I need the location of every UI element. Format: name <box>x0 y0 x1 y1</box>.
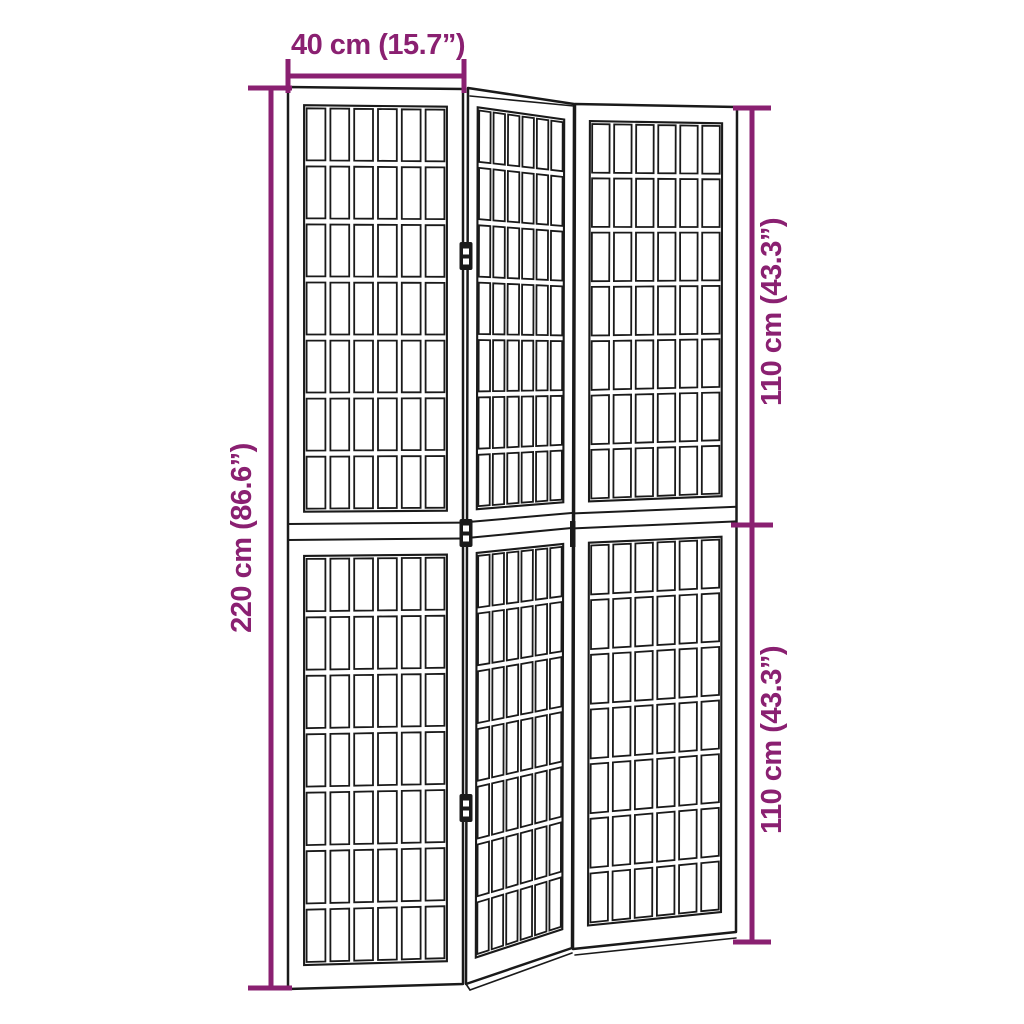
lattice-cell <box>426 558 445 610</box>
lattice-cell <box>550 767 562 819</box>
lattice-cell <box>635 868 653 918</box>
lattice-cell <box>591 817 609 867</box>
lattice-cell <box>479 225 491 277</box>
hinge <box>460 242 473 270</box>
lattice-cell <box>478 842 490 897</box>
lattice-cell <box>378 733 397 786</box>
room-divider-dimension-diagram: 40 cm (15.7”) 220 cm (86.6”) 110 cm (43.… <box>0 0 1024 1024</box>
lattice-cell <box>426 732 445 784</box>
lattice-cell <box>521 774 533 827</box>
lattice-cell <box>508 115 520 167</box>
lattice-cell <box>658 340 676 388</box>
lattice-cell <box>426 674 445 726</box>
lattice-cell <box>521 662 533 714</box>
lattice-cell <box>402 616 421 668</box>
lattice-cell <box>354 283 373 335</box>
lattice-cell <box>636 233 654 281</box>
lattice-cell <box>330 399 349 451</box>
lattice-cell <box>536 285 548 335</box>
lattice-cell <box>702 179 720 227</box>
lattice-cell <box>680 179 698 227</box>
lattice-cell <box>521 830 533 883</box>
lattice-cell <box>680 286 698 334</box>
hinge-screw <box>463 811 469 817</box>
lattice-cell <box>493 454 505 506</box>
lattice-cell <box>307 166 326 218</box>
lattice-cell <box>402 456 421 508</box>
lattice-cell <box>307 617 326 670</box>
lattice-cell <box>479 168 491 220</box>
lattice-cell <box>506 890 518 944</box>
lattice-cell <box>679 702 697 752</box>
lattice-cell <box>426 398 445 450</box>
lattice-cell <box>551 121 563 172</box>
dimension-label-lower-height: 110 cm (43.3”) <box>756 646 788 834</box>
lattice-cell <box>613 449 631 498</box>
lattice-cell <box>613 870 631 920</box>
lattice-cell <box>426 790 445 842</box>
lattice-cell <box>402 849 421 902</box>
lattice-cell <box>613 652 631 702</box>
lattice-cell <box>536 604 548 656</box>
lattice-cell <box>307 224 326 276</box>
lattice-cell <box>479 283 491 335</box>
lattice-cell <box>378 791 397 844</box>
lattice-cell <box>507 453 519 504</box>
lattice-cell <box>354 617 373 669</box>
lattice-cell <box>402 167 421 219</box>
hinge-screw <box>463 801 469 807</box>
lattice-cell <box>330 559 349 612</box>
lattice-cell <box>537 174 549 225</box>
lattice-cell <box>636 286 654 335</box>
lattice-cell <box>307 851 326 904</box>
lattice-cell <box>591 599 609 649</box>
lattice-cell <box>701 808 719 858</box>
lattice-cell <box>507 721 519 774</box>
lattice-cell <box>426 616 445 668</box>
lattice-cell <box>657 812 675 862</box>
room-divider-drawing <box>288 87 737 990</box>
lattice-cell <box>550 822 562 875</box>
hinge-plate <box>460 794 473 822</box>
lattice-cell <box>613 598 631 648</box>
lattice-cell <box>330 167 349 219</box>
lattice-cell <box>506 834 518 888</box>
lattice-cell <box>506 777 518 831</box>
lattice-cell <box>550 602 562 653</box>
dimension-label-total-height: 220 cm (86.6”) <box>226 443 258 633</box>
lattice-cell <box>402 283 421 335</box>
lattice-cell <box>402 109 421 161</box>
lattice-cell <box>354 791 373 844</box>
lattice-cell <box>592 341 610 390</box>
lattice-cell <box>657 542 675 591</box>
lattice-cell <box>591 449 609 498</box>
diagram-canvas: 40 cm (15.7”) 220 cm (86.6”) 110 cm (43.… <box>0 0 1024 1024</box>
lattice-cell <box>507 340 519 391</box>
lattice-cell <box>354 225 373 277</box>
lattice-cell <box>378 109 397 161</box>
lattice-cell <box>492 895 504 950</box>
lattice-cell <box>636 179 654 227</box>
lattice-cell <box>426 225 445 277</box>
lattice-cell <box>402 558 421 610</box>
lattice-cell <box>354 733 373 786</box>
hinge-screw <box>463 259 469 265</box>
lattice-cell <box>550 547 562 598</box>
lattice-cell <box>522 117 534 168</box>
lattice-cell <box>680 541 698 590</box>
lattice-cell <box>402 674 421 726</box>
lattice-cell <box>549 878 561 931</box>
lattice-cell <box>680 393 698 441</box>
lattice-cell <box>658 394 676 443</box>
hinge-screw <box>463 536 469 542</box>
lattice-cell <box>614 124 632 173</box>
lattice-cell <box>493 553 505 606</box>
lattice-cell <box>613 544 631 594</box>
lattice-cell <box>657 758 675 808</box>
lattice-cell <box>521 886 533 940</box>
lattice-cell <box>426 167 445 219</box>
lattice-cell <box>522 285 534 335</box>
lattice-cell <box>536 660 548 712</box>
lattice-cell <box>426 906 445 959</box>
lattice-cell <box>613 761 631 811</box>
lattice-cell <box>702 286 720 334</box>
lattice-cell <box>378 907 397 960</box>
lattice-cell <box>636 125 654 174</box>
lattice-cell <box>658 125 676 173</box>
lattice-cell <box>592 124 610 173</box>
hinge-edge <box>570 521 576 547</box>
lattice-cell <box>701 862 719 912</box>
hinge-screw <box>463 526 469 532</box>
lattice-cell <box>378 616 397 668</box>
lattice-cell <box>591 708 609 758</box>
lattice-cell <box>551 176 563 226</box>
lattice-cell <box>507 608 519 660</box>
lattice-cell <box>658 286 676 334</box>
lattice-cell <box>402 732 421 784</box>
lattice-cell <box>307 909 326 962</box>
lattice-cell <box>592 178 610 227</box>
lattice-cell <box>536 549 548 600</box>
lattice-cell <box>680 233 698 281</box>
lattice-cell <box>551 286 563 336</box>
lattice-cell <box>702 593 720 642</box>
lattice-cell <box>493 226 505 278</box>
lattice-cell <box>537 230 549 280</box>
lattice-cell <box>702 393 720 441</box>
lattice-cell <box>680 594 698 643</box>
lattice-cell <box>702 233 720 281</box>
lattice-cell <box>378 341 397 393</box>
lattice-cell <box>307 108 326 160</box>
hinge-screw <box>463 249 469 255</box>
lattice-cell <box>679 756 697 806</box>
hinge-plate <box>460 519 473 547</box>
lattice-cell <box>521 606 533 658</box>
hinge <box>460 794 473 822</box>
lattice-cell <box>591 654 609 704</box>
lattice-cell <box>636 394 654 443</box>
lattice-cell <box>330 909 349 962</box>
lattice-cell <box>492 667 504 720</box>
lattice-cell <box>354 341 373 393</box>
lattice-cell <box>657 650 675 700</box>
lattice-cell <box>635 597 653 647</box>
lattice-cell <box>378 167 397 219</box>
lattice-cell <box>493 283 505 334</box>
lattice-cell <box>613 815 631 865</box>
hinge <box>460 519 473 547</box>
lattice-cell <box>330 734 349 787</box>
panel-right <box>573 104 737 949</box>
lattice-cell <box>614 341 632 390</box>
lattice-cell <box>354 558 373 610</box>
lattice-cell <box>494 113 506 165</box>
lattice-cell <box>493 169 505 221</box>
lattice-cell <box>478 555 490 608</box>
lattice-cell <box>508 228 520 279</box>
lattice-cell <box>378 558 397 610</box>
lattice-cell <box>635 759 653 809</box>
lattice-cell <box>522 452 534 503</box>
lattice-cell <box>701 754 719 804</box>
lattice-cell <box>680 447 698 496</box>
lattice-cell <box>657 866 675 916</box>
lattice-cell <box>330 283 349 335</box>
lattice-cell <box>478 784 490 838</box>
lattice-cell <box>479 111 491 164</box>
lattice-cell <box>679 864 697 914</box>
center-bottom-tip-edge <box>466 984 470 990</box>
lattice-cell <box>354 399 373 451</box>
lattice-cell <box>402 791 421 843</box>
hinge-plate <box>460 242 473 270</box>
lattice-cell <box>307 457 326 509</box>
lattice-cell <box>307 792 326 845</box>
lattice-cell <box>492 724 504 778</box>
lattice-cell <box>550 451 562 501</box>
lattice-cell <box>478 454 490 506</box>
lattice-cell <box>330 675 349 728</box>
lattice-cell <box>354 675 373 727</box>
lattice-cell <box>426 110 445 162</box>
lattice-cell <box>551 396 563 446</box>
lattice-cell <box>635 651 653 701</box>
lattice-cell <box>535 882 547 935</box>
lattice-cell <box>330 109 349 161</box>
dimension-label-upper-height: 110 cm (43.3”) <box>756 218 788 406</box>
lattice-cell <box>402 907 421 960</box>
lattice-cell <box>522 396 534 446</box>
lattice-cell <box>702 339 720 387</box>
lattice-cell <box>478 669 490 723</box>
lattice-cell <box>535 771 547 824</box>
lattice-cell <box>477 899 489 954</box>
lattice-cell <box>507 397 519 448</box>
lattice-cell <box>658 179 676 227</box>
lattice-cell <box>551 231 563 281</box>
lattice-cell <box>521 718 533 771</box>
lattice-cell <box>479 340 491 391</box>
lattice-cell <box>680 125 698 173</box>
lattice-cell <box>636 340 654 389</box>
lattice-cell <box>507 665 519 718</box>
lattice-cell <box>635 543 653 593</box>
lattice-cell <box>537 119 549 170</box>
panel-left-mid-rail <box>288 523 463 524</box>
lattice-cell <box>426 341 445 393</box>
lattice-cell <box>402 341 421 393</box>
lattice-cell <box>508 171 520 222</box>
lattice-cell <box>402 398 421 450</box>
lattice-cell <box>702 540 720 589</box>
lattice-cell <box>536 451 548 501</box>
lattice-cell <box>426 848 445 901</box>
lattice-cell <box>493 340 505 391</box>
lattice-cell <box>657 704 675 754</box>
lattice-cell <box>522 341 534 391</box>
lattice-cell <box>378 398 397 450</box>
lattice-cell <box>592 287 610 336</box>
lattice-cell <box>614 179 632 228</box>
lattice-cell <box>378 849 397 902</box>
lattice-cell <box>426 283 445 335</box>
lattice-cell <box>354 908 373 961</box>
lattice-cell <box>330 792 349 845</box>
lattice-cell <box>478 612 490 665</box>
lattice-cell <box>378 283 397 335</box>
lattice-cell <box>592 233 610 282</box>
lattice-cell <box>551 341 563 390</box>
panel-center <box>466 88 574 984</box>
lattice-cell <box>591 763 609 813</box>
lattice-cell <box>613 707 631 757</box>
lattice-cell <box>702 647 720 696</box>
lattice-cell <box>307 676 326 729</box>
lattice-cell <box>378 675 397 727</box>
lattice-cell <box>702 126 720 174</box>
dimension-label-width: 40 cm (15.7”) <box>291 29 465 61</box>
lattice-cell <box>635 705 653 755</box>
lattice-cell <box>535 715 547 767</box>
lattice-cell <box>478 727 490 781</box>
lattice-cell <box>679 810 697 860</box>
lattice-cell <box>507 552 519 604</box>
lattice-cell <box>550 657 562 709</box>
lattice-cell <box>354 850 373 903</box>
lattice-cell <box>614 395 632 444</box>
lattice-cell <box>378 225 397 277</box>
lattice-cell <box>658 233 676 281</box>
lattice-cell <box>657 596 675 645</box>
lattice-cell <box>635 814 653 864</box>
lattice-cell <box>330 850 349 903</box>
lattice-cell <box>307 734 326 787</box>
lattice-cell <box>591 545 609 595</box>
lattice-cell <box>680 340 698 388</box>
lattice-cell <box>590 872 608 923</box>
lattice-cell <box>701 701 719 750</box>
lattice-cell <box>536 341 548 391</box>
lattice-cell <box>354 167 373 219</box>
lattice-cell <box>307 399 326 451</box>
lattice-cell <box>522 173 534 224</box>
lattice-cell <box>330 225 349 277</box>
lattice-cell <box>479 397 491 449</box>
lattice-cell <box>508 284 520 335</box>
lattice-cell <box>614 233 632 282</box>
lattice-cell <box>330 341 349 393</box>
lattice-cell <box>492 610 504 663</box>
lattice-cell <box>354 456 373 508</box>
lattice-cell <box>679 648 697 697</box>
lattice-cell <box>636 448 654 497</box>
lattice-cell <box>307 559 326 611</box>
lattice-cell <box>330 617 349 670</box>
lattice-cell <box>522 229 534 280</box>
lattice-cell <box>307 341 326 393</box>
lattice-cell <box>550 712 562 764</box>
lattice-cell <box>492 838 504 892</box>
lattice-cell <box>592 395 610 444</box>
lattice-cell <box>378 456 397 508</box>
lattice-cell <box>536 396 548 446</box>
lattice-cell <box>330 457 349 509</box>
lattice-cell <box>402 225 421 277</box>
lattice-cell <box>307 283 326 335</box>
lattice-cell <box>658 447 676 496</box>
panel-left <box>288 87 463 989</box>
lattice-cell <box>492 781 504 835</box>
lattice-cell <box>702 446 720 494</box>
lattice-cell <box>535 826 547 879</box>
lattice-cell <box>614 287 632 336</box>
lattice-cell <box>426 456 445 508</box>
lattice-cell <box>493 397 505 448</box>
lattice-cell <box>521 550 533 602</box>
lattice-cell <box>354 109 373 161</box>
